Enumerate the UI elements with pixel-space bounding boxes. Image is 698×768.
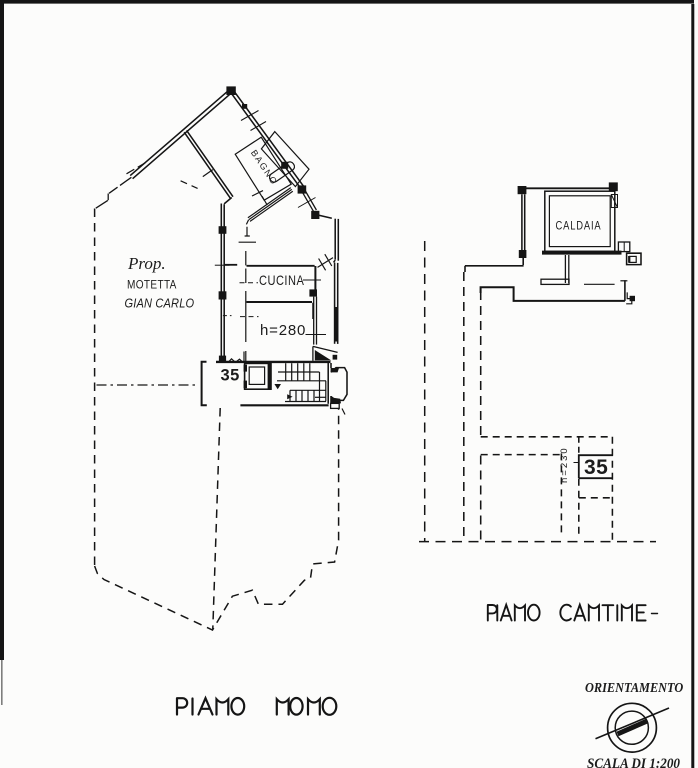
svg-text:h=280: h=280 — [260, 322, 306, 339]
svg-text:GIAN CARLO: GIAN CARLO — [125, 296, 195, 311]
svg-text:MOTETTA: MOTETTA — [127, 279, 177, 292]
svg-text:ORIENTAMENTO: ORIENTAMENTO — [585, 679, 684, 695]
svg-text:CALDAIA: CALDAIA — [556, 219, 602, 232]
svg-text:SCALA DI 1:200: SCALA DI 1:200 — [587, 755, 680, 768]
svg-text:35: 35 — [584, 456, 608, 479]
svg-text:35: 35 — [221, 367, 240, 385]
svg-text:h=230: h=230 — [559, 446, 570, 483]
svg-text:CUCINA: CUCINA — [259, 273, 305, 288]
svg-text:Prop.: Prop. — [127, 254, 166, 273]
